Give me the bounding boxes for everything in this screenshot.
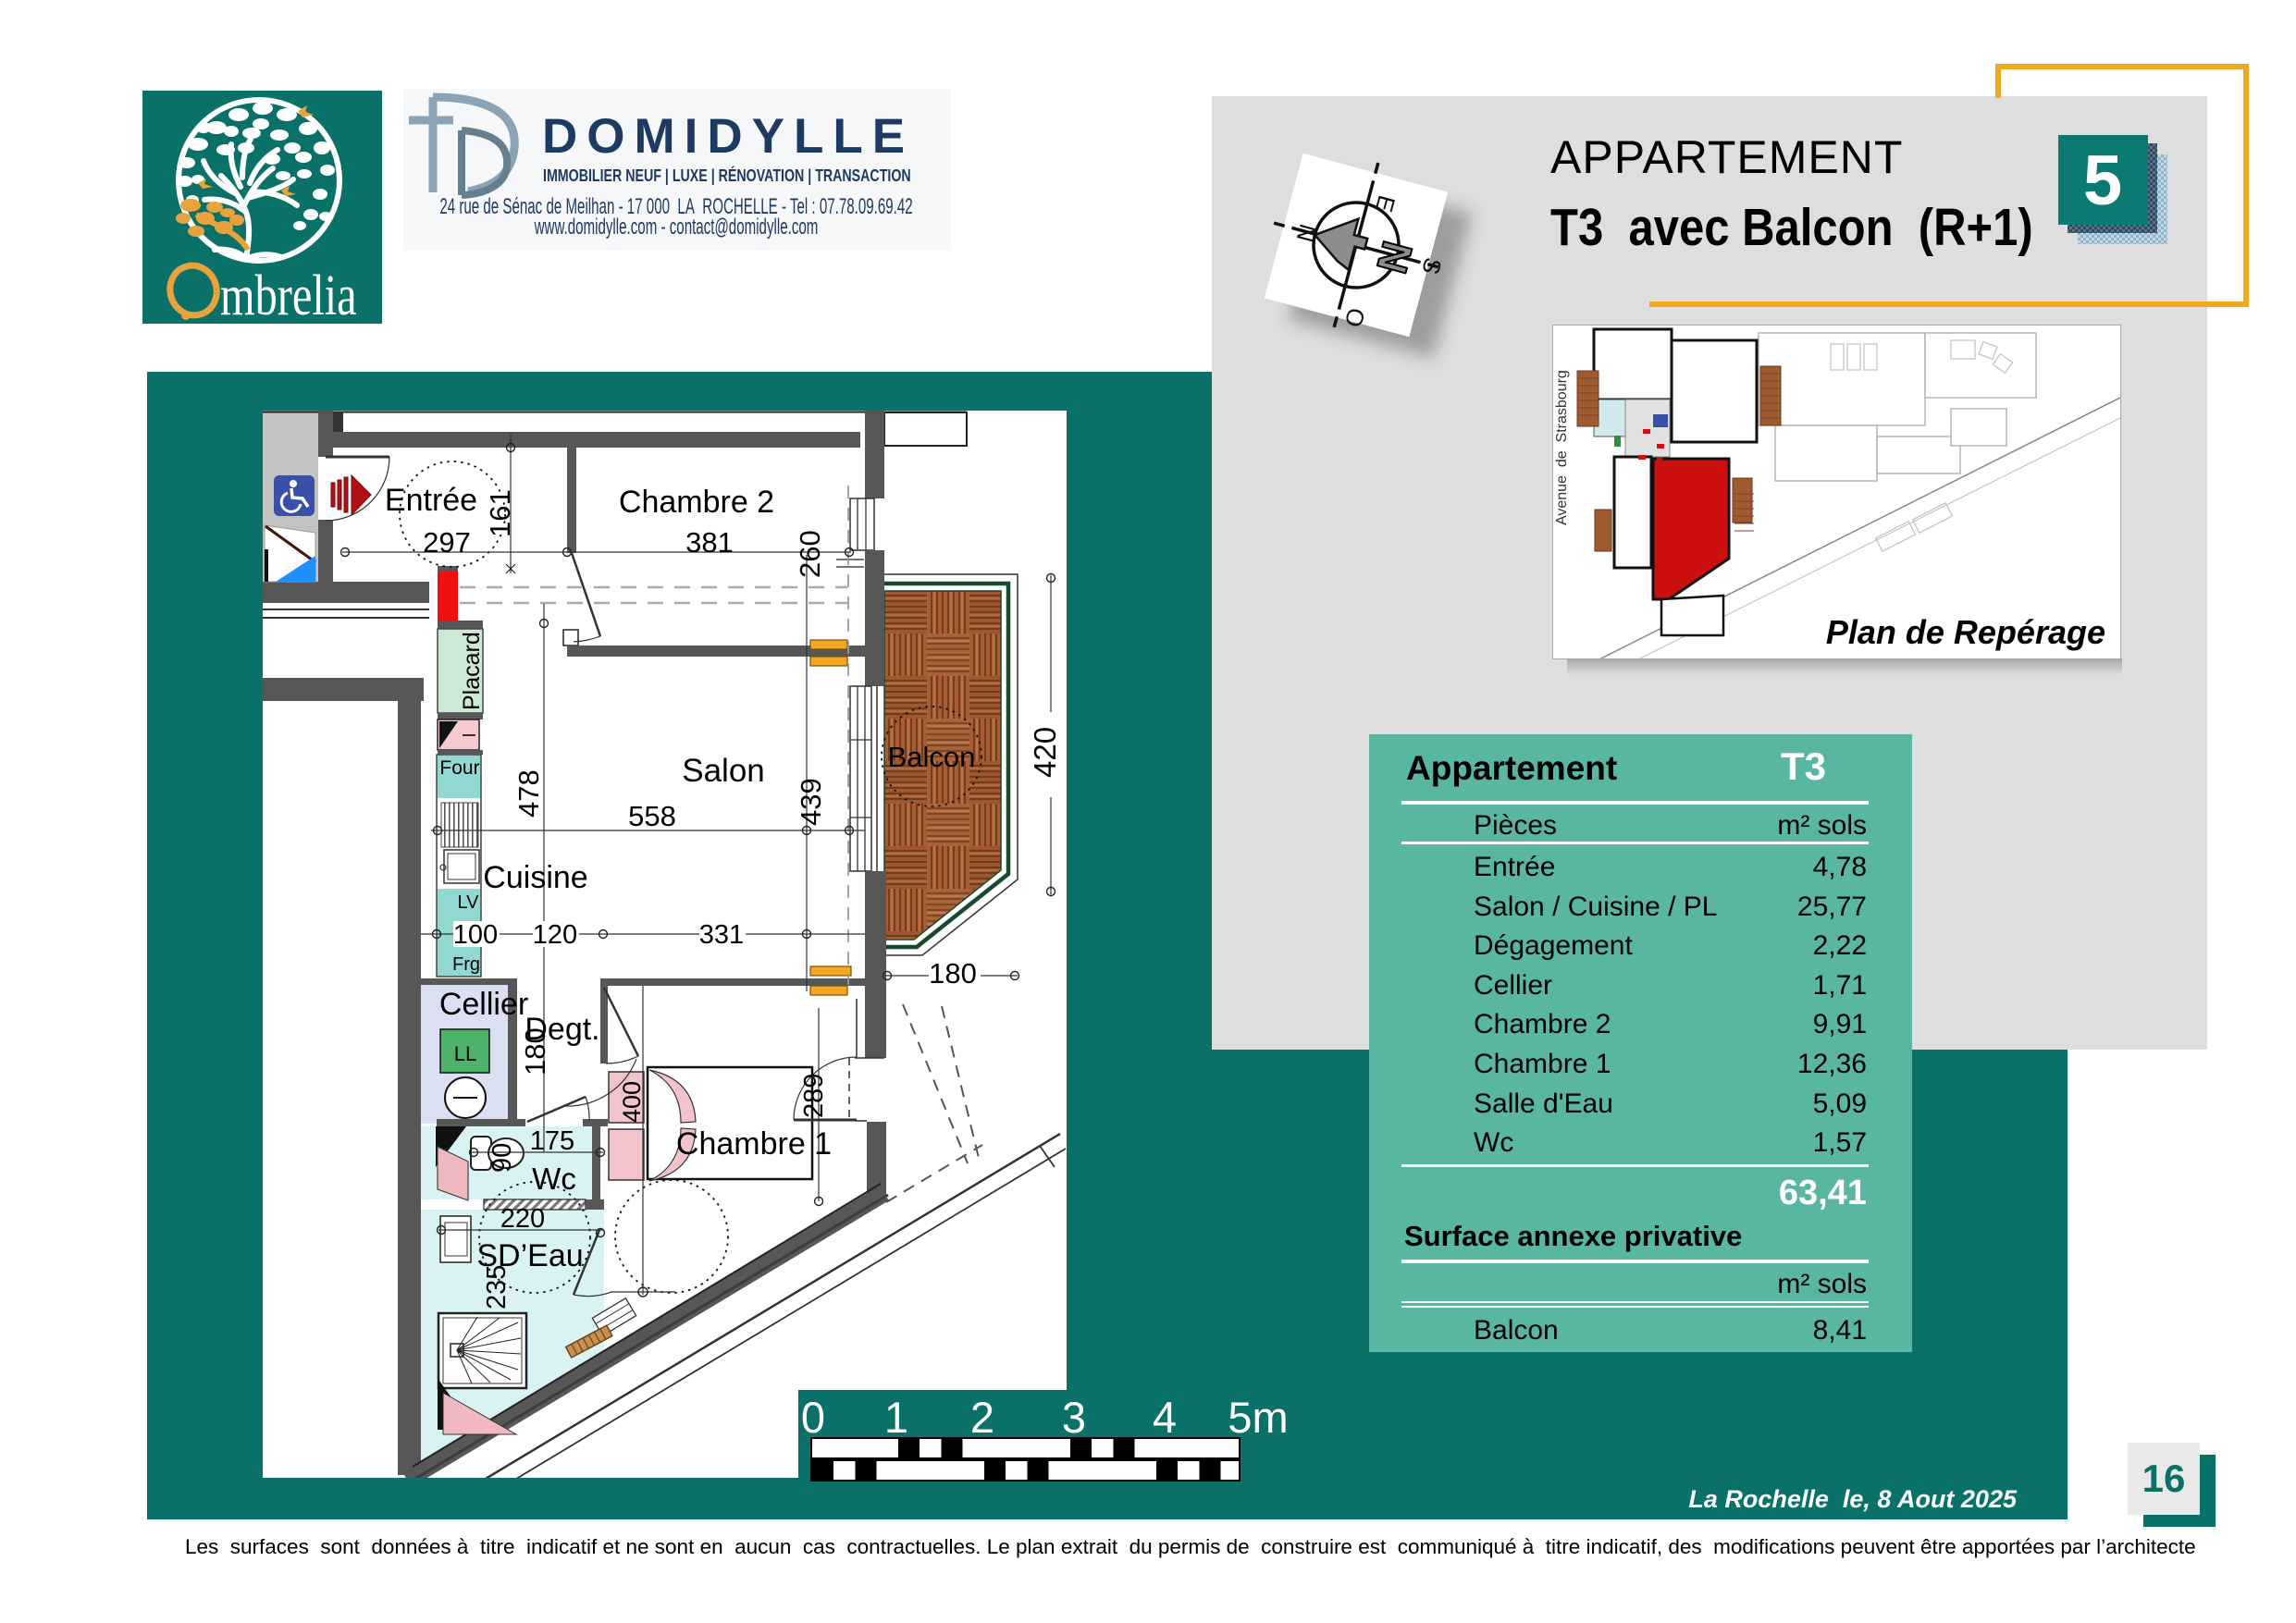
svg-text:478: 478 [512, 769, 545, 818]
svg-text:Chambre 1: Chambre 1 [676, 1126, 832, 1162]
svg-text:331: 331 [699, 920, 744, 950]
svg-text:220: 220 [500, 1204, 545, 1234]
svg-text:Four: Four [439, 757, 479, 779]
svg-text:Cuisine: Cuisine [483, 860, 587, 895]
svg-text:Placard: Placard [459, 632, 485, 710]
svg-text:LV: LV [458, 892, 480, 913]
svg-text:Chambre 2: Chambre 2 [619, 485, 774, 520]
svg-text:Cellier: Cellier [439, 987, 528, 1022]
svg-text:Frg: Frg [452, 954, 480, 975]
svg-text:400: 400 [618, 1081, 646, 1123]
svg-text:381: 381 [685, 526, 734, 559]
svg-text:120: 120 [533, 920, 577, 950]
svg-text:439: 439 [795, 778, 827, 826]
svg-text:235: 235 [482, 1265, 512, 1309]
svg-text:180: 180 [519, 1027, 551, 1076]
svg-text:161: 161 [484, 489, 516, 537]
svg-text:175: 175 [530, 1126, 574, 1156]
svg-text:180: 180 [929, 957, 977, 990]
svg-text:Salon: Salon [682, 753, 765, 789]
svg-text:558: 558 [628, 800, 676, 832]
svg-text:90: 90 [488, 1143, 517, 1173]
svg-text:260: 260 [794, 530, 826, 578]
svg-text:Entrée: Entrée [385, 483, 477, 518]
svg-text:297: 297 [423, 526, 471, 559]
svg-text:Avenue de Strasbourg: Avenue de Strasbourg [1554, 370, 1570, 525]
svg-text:LL: LL [454, 1042, 476, 1065]
svg-text:Plan de Repérage: Plan de Repérage [1826, 613, 2105, 651]
svg-text:289: 289 [799, 1074, 829, 1118]
svg-text:Balcon: Balcon [888, 741, 976, 773]
svg-text:420: 420 [1028, 727, 1062, 778]
svg-text:Wc: Wc [532, 1162, 576, 1196]
svg-text:DOMIDYLLE: DOMIDYLLE [542, 109, 914, 164]
svg-text:mbrelia: mbrelia [220, 264, 357, 324]
svg-text:www.domidylle.com - contact@do: www.domidylle.com - contact@domidylle.co… [534, 215, 819, 240]
svg-text:100: 100 [453, 920, 498, 950]
svg-text:IMMOBILIER NEUF | LUXE | RÉNOV: IMMOBILIER NEUF | LUXE | RÉNOVATION | TR… [543, 166, 911, 185]
svg-text:5: 5 [2083, 141, 2122, 220]
